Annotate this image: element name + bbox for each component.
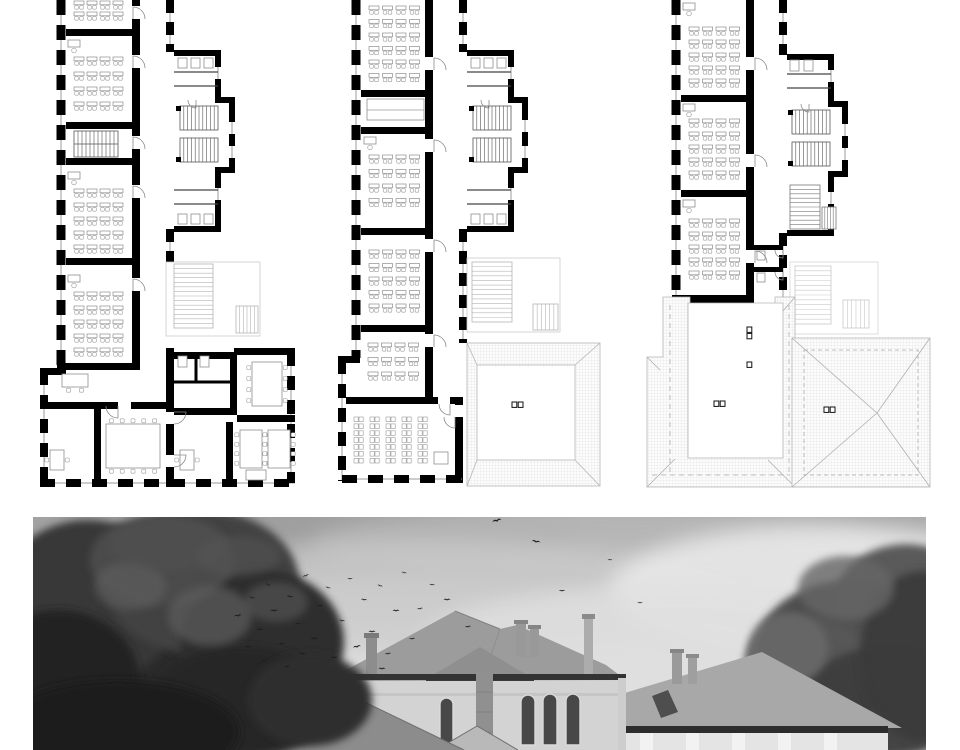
presentation-board	[0, 0, 960, 750]
floor-plan-right	[647, 0, 930, 487]
exterior-rendering	[0, 497, 960, 750]
floor-plan-left	[40, 0, 295, 487]
board-canvas	[0, 0, 960, 750]
floor-plan-middle	[338, 0, 600, 486]
